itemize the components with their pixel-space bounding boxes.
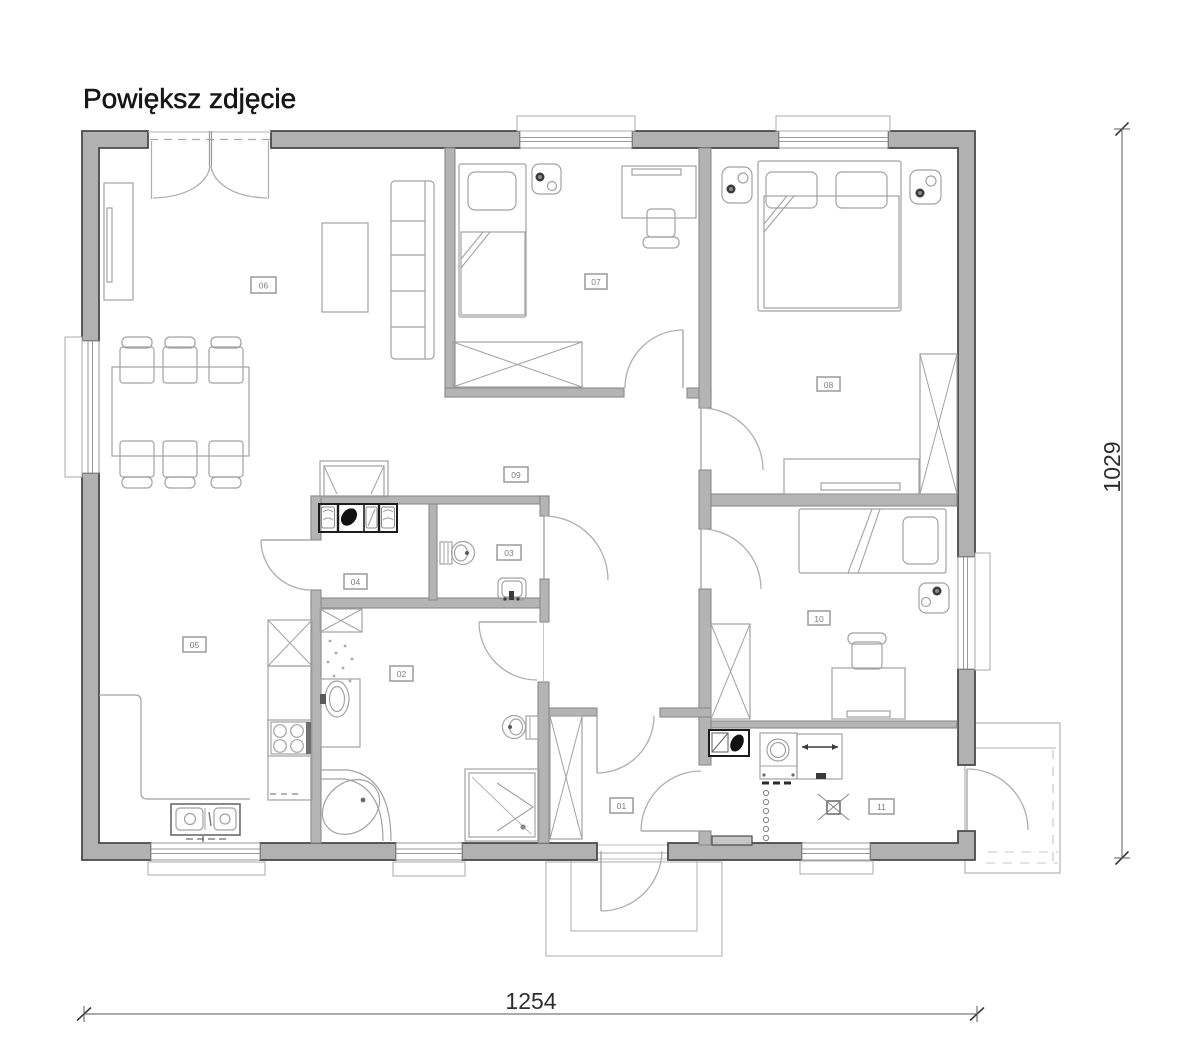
svg-text:09: 09 [511,470,521,480]
svg-text:04: 04 [351,577,361,587]
svg-text:05: 05 [190,640,200,650]
svg-text:08: 08 [824,380,834,390]
svg-text:1254: 1254 [505,988,556,1014]
svg-text:10: 10 [814,614,824,624]
svg-text:Powiększ zdjęcie: Powiększ zdjęcie [83,83,296,114]
svg-text:01: 01 [617,801,627,811]
svg-text:07: 07 [591,277,601,287]
svg-text:11: 11 [877,802,886,812]
svg-text:06: 06 [259,281,269,291]
svg-text:1029: 1029 [1099,441,1125,492]
svg-text:02: 02 [397,669,407,679]
svg-text:03: 03 [504,548,514,558]
